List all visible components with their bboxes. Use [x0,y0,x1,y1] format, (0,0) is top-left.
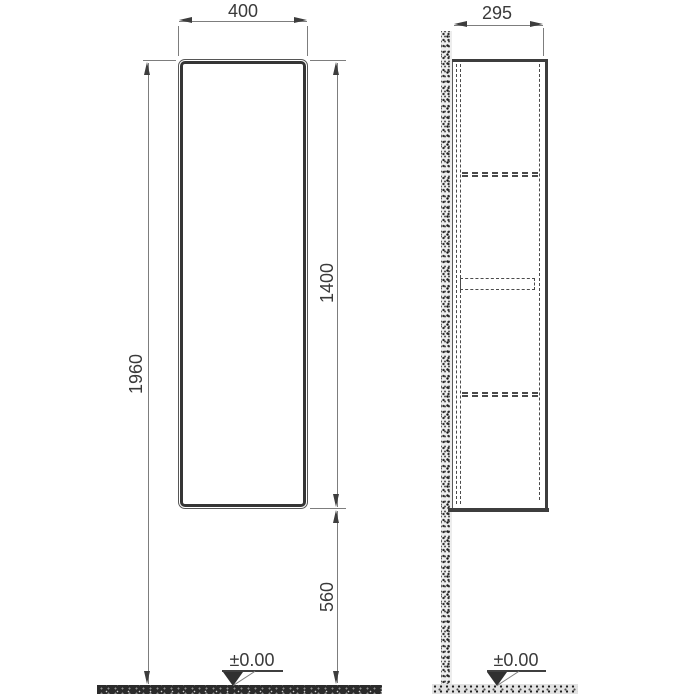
arrowhead-left-icon [179,17,192,23]
cabinet-technical-drawing: 400 1960 1400 560 ±0.00 295 [0,0,700,700]
arrowhead-up-icon [333,510,339,523]
shelf-hidden-line [462,392,538,397]
side-depth-label: 295 [482,4,512,22]
front-datum-label: ±0.00 [230,651,275,669]
cabinet-side-back-edge [452,62,453,508]
extension-line [143,60,176,61]
arrowhead-down-icon [144,671,150,684]
fixed-shelf-hidden-outline [460,278,535,290]
cabinet-front-outline [178,59,308,509]
cabinet-front-door-frame [180,61,306,507]
front-width-dimension-line [179,21,307,22]
clearance-height-label: 560 [318,582,336,612]
shelf-hidden-line [462,172,538,177]
cabinet-side-top-edge [452,59,548,62]
arrowhead-up-icon [144,62,150,75]
cabinet-side-front-edge [545,59,548,512]
wall-hatch [441,31,452,684]
arrowhead-down-icon [333,671,339,684]
extension-line [310,60,346,61]
total-height-dimension-line [148,63,149,684]
extension-line [307,26,308,56]
arrowhead-right-icon [530,21,543,27]
arrowhead-down-icon [333,494,339,507]
cabinet-height-label: 1400 [318,263,336,303]
arrowhead-up-icon [333,62,339,75]
arrowhead-right-icon [294,17,307,23]
clearance-dimension-line [337,511,338,683]
cabinet-height-dimension-line [337,63,338,507]
floor-hatch-front [97,685,382,694]
extension-line [310,508,346,509]
extension-line [178,26,179,56]
back-panel-hidden-line [456,64,457,504]
arrowhead-left-icon [454,21,467,27]
front-width-label: 400 [228,2,258,20]
extension-line [543,28,544,56]
cabinet-side-bottom-edge [448,508,549,512]
side-datum-label: ±0.00 [494,651,539,669]
total-height-label: 1960 [127,354,145,394]
door-inner-hidden-line [539,64,540,500]
